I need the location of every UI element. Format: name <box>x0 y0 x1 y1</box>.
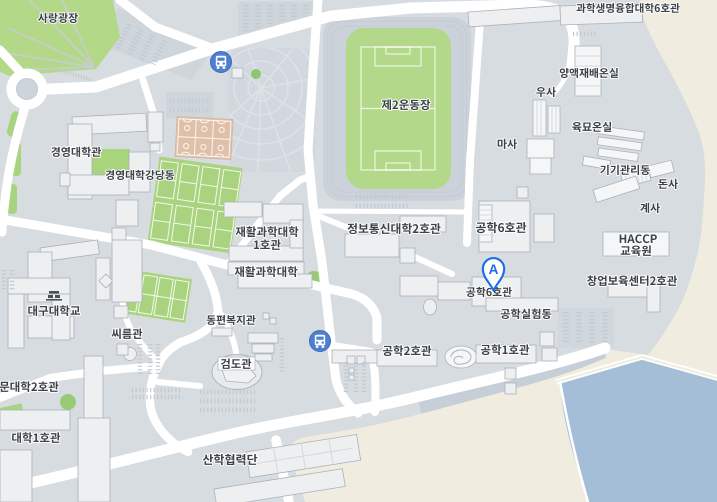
svg-text:A: A <box>489 262 499 277</box>
